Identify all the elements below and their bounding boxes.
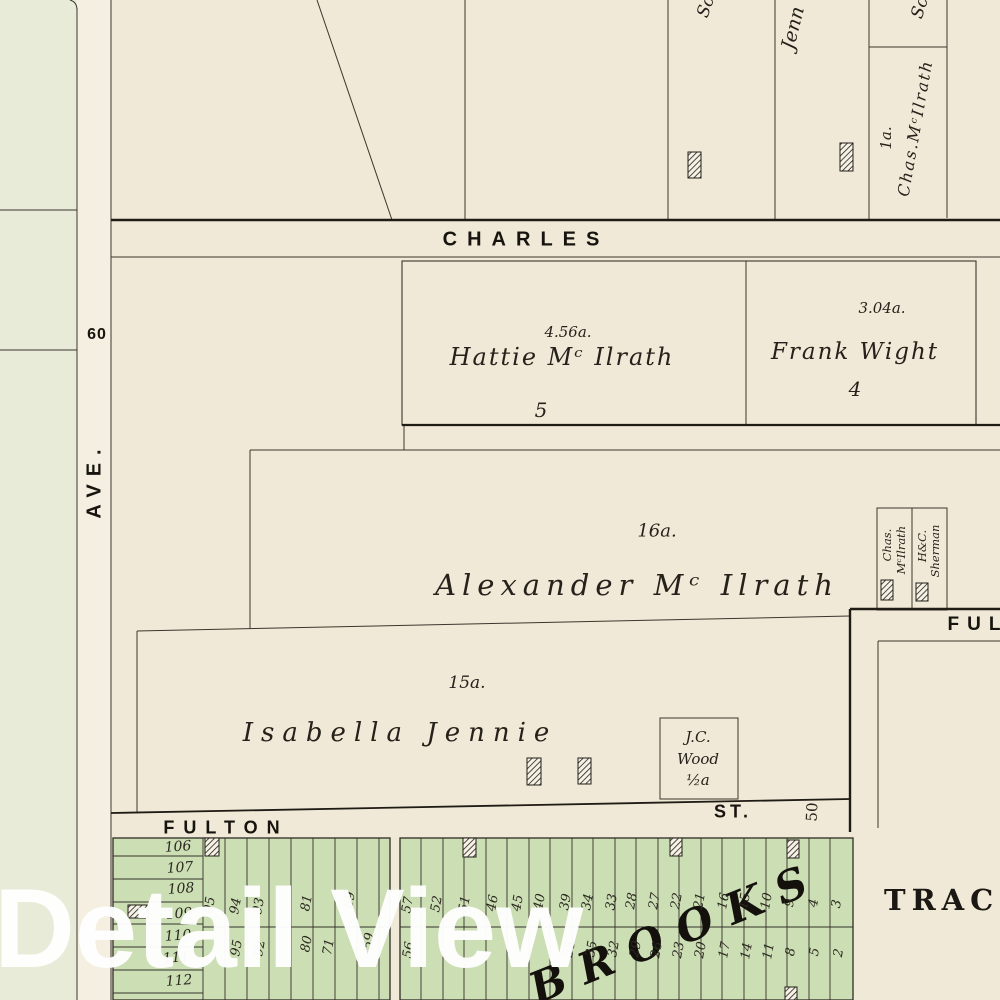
parcel-area-hattie: 4.56a.	[544, 323, 591, 341]
parcel-lines	[0, 0, 1000, 1000]
parcel-owner-jcwood-3: ½a	[686, 771, 709, 789]
lot-number: 26	[648, 941, 666, 960]
street-label-fulton-st: ST.	[714, 802, 752, 823]
lot-number: 29	[627, 940, 645, 959]
street-width-60: 60	[87, 326, 107, 344]
building-footprint	[205, 838, 219, 856]
parcel-owner-hattie: Hattie Mᶜ Ilrath	[450, 343, 675, 371]
strip-owner-chas-2: MᶜIlrath	[894, 526, 908, 574]
parcel-area-frank: 3.04a.	[858, 299, 905, 317]
building-footprint	[578, 758, 591, 784]
lot-number: 35	[583, 940, 601, 959]
lot-number: 32	[605, 940, 623, 959]
lot-number: 17	[716, 941, 734, 960]
lot-number: 21	[691, 892, 709, 911]
parcel-area-isabella: 15a.	[448, 673, 485, 693]
street-label-fulton: FULTON	[163, 818, 288, 839]
subdivision-label-tract-partial: TRAC	[884, 883, 999, 917]
parcel-owner-isabella: Isabella Jennie	[243, 718, 558, 748]
building-footprint	[881, 580, 893, 600]
building-footprint	[787, 840, 799, 858]
west-block	[0, 0, 77, 1000]
strip-owner-sherman-2: Sherman	[928, 525, 942, 578]
building-footprint	[688, 152, 701, 178]
plat-map: CHARLES FULTON ST. FUL AVE. 60 50 4.56a.…	[0, 0, 1000, 1000]
lot-number: 106	[164, 838, 192, 856]
parcel-lot-5: 5	[535, 398, 548, 422]
parcel-lot-4: 4	[849, 377, 862, 401]
lot-number: 11	[760, 942, 778, 961]
lot-number: 20	[692, 941, 710, 960]
building-footprint	[785, 987, 797, 1000]
street-label-charles: CHARLES	[443, 229, 610, 252]
building-footprint	[840, 143, 853, 171]
parcel-owner-jcwood-1: J.C.	[685, 728, 710, 746]
lot-number: 10	[758, 892, 776, 911]
building-footprint	[916, 583, 928, 601]
lot-number: 16	[715, 892, 733, 911]
building-footprint	[670, 838, 682, 856]
lot-number: 23	[670, 941, 688, 960]
lot-number: 28	[623, 892, 641, 911]
parcel-area-alexander: 16a.	[637, 521, 676, 542]
parcel-area-chas-top: 1a.	[877, 126, 895, 149]
strip-owner-chas-1: Chas.	[880, 529, 894, 562]
building-footprint	[463, 838, 476, 857]
lot-number: 14	[738, 942, 756, 961]
lot-number: 27	[646, 892, 664, 911]
building-footprint	[527, 758, 541, 785]
lot-number: 33	[603, 893, 621, 912]
lot-number: 22	[668, 892, 686, 911]
parcel-owner-jcwood-2: Wood	[677, 750, 719, 768]
street-width-50: 50	[803, 802, 822, 822]
parcel-owner-frank: Frank Wight	[771, 339, 939, 365]
lot-number: 15	[736, 892, 754, 911]
strip-owner-sherman-1: H&C.	[915, 530, 929, 562]
watermark-detail-view: Detail View	[0, 876, 583, 982]
street-label-ave: AVE.	[84, 441, 107, 518]
street-label-fulton-upper: FUL	[948, 614, 1000, 636]
parcel-owner-alexander: Alexander Mᶜ Ilrath	[435, 568, 839, 602]
